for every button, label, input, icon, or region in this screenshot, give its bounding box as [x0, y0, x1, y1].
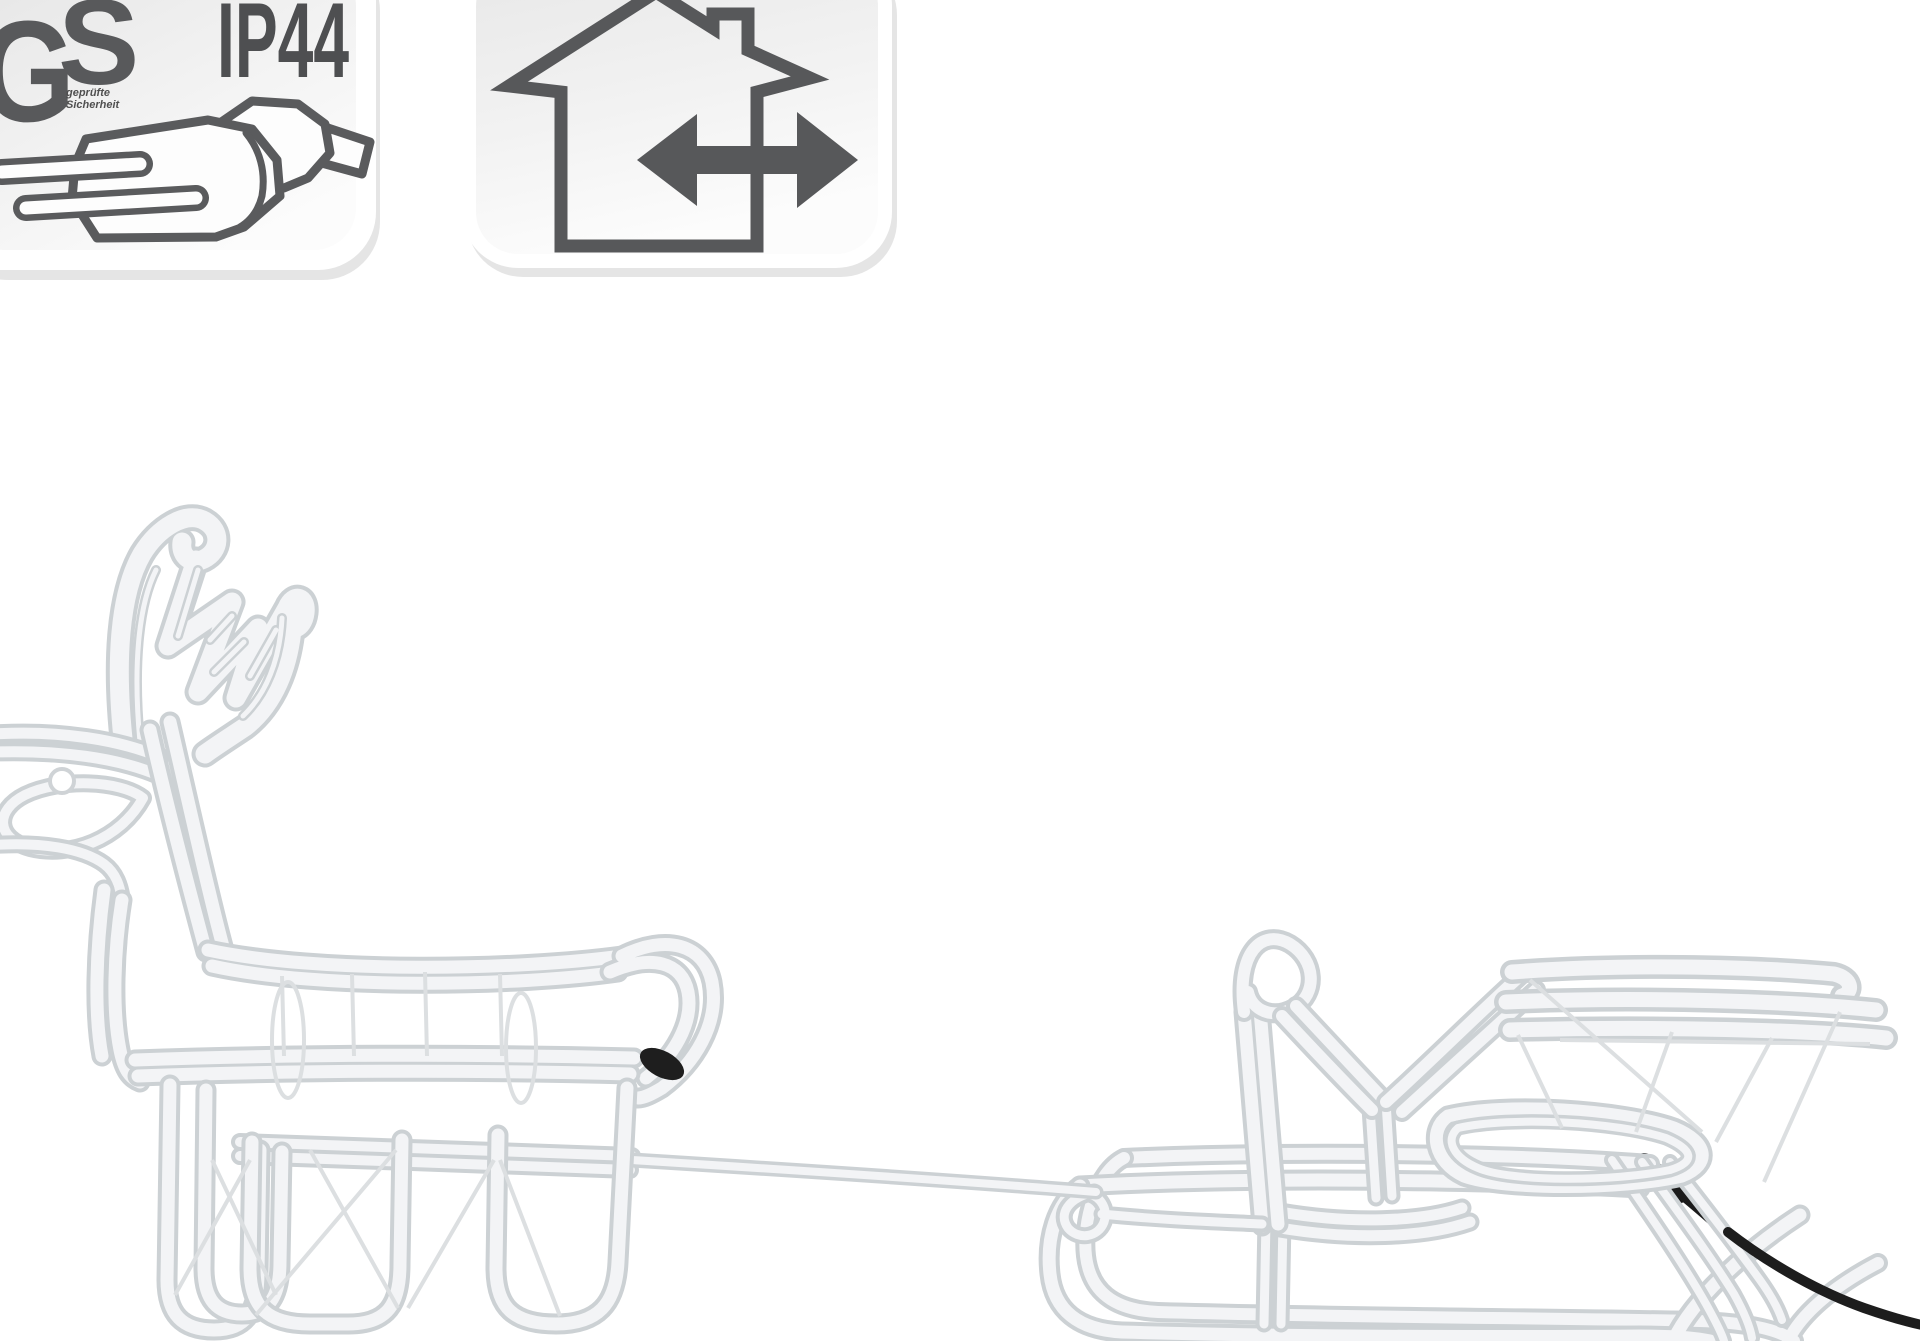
svg-text:Sicherheit: Sicherheit	[66, 99, 121, 111]
svg-text:IP44: IP44	[217, 0, 349, 100]
svg-text:geprüfte: geprüfte	[65, 87, 110, 99]
